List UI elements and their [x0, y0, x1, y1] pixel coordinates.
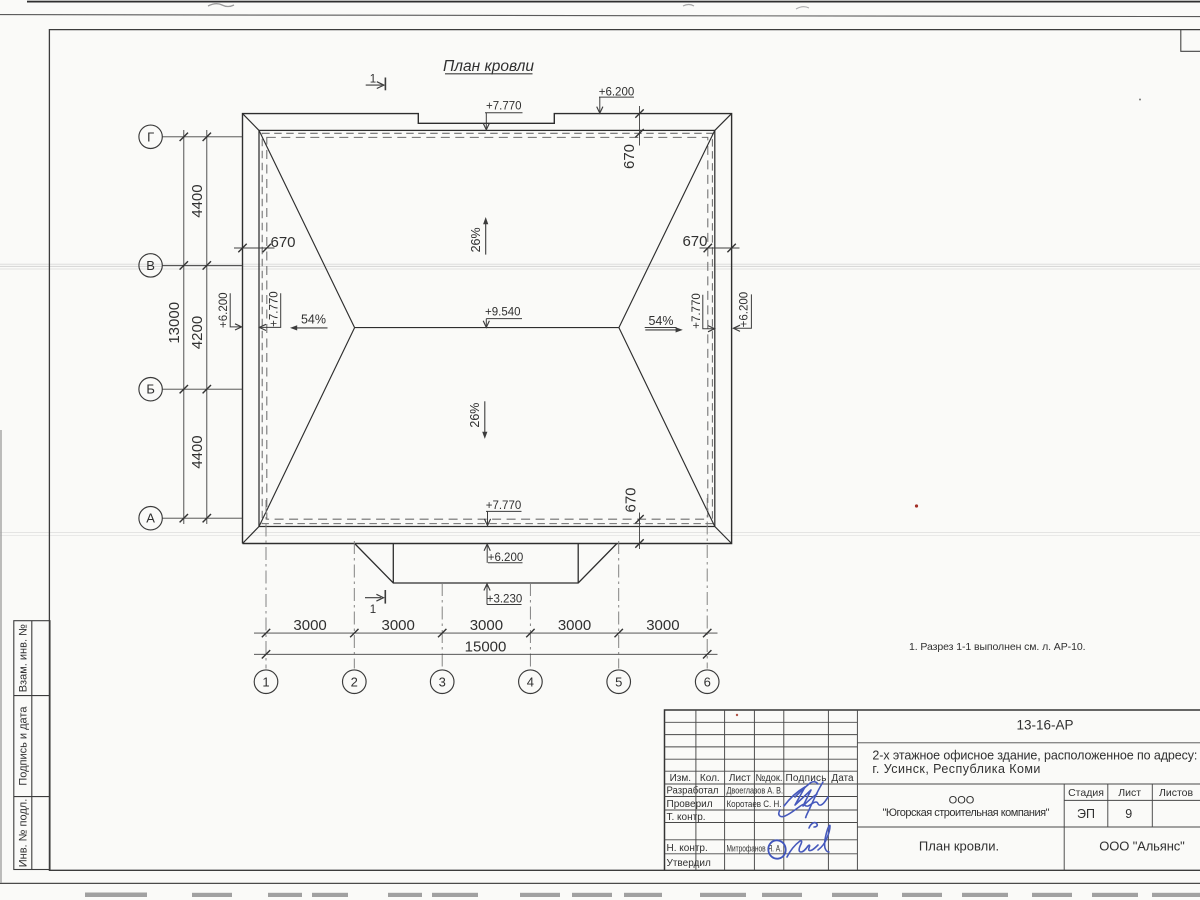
svg-text:Двоеглазов А. В.: Двоеглазов А. В. — [727, 786, 784, 797]
svg-text:+6.200: +6.200 — [488, 552, 524, 564]
svg-text:Подпись и дата: Подпись и дата — [17, 706, 29, 786]
svg-text:54%: 54% — [301, 312, 326, 326]
svg-text:ООО "Альянс": ООО "Альянс" — [1099, 838, 1185, 853]
svg-text:670: 670 — [622, 487, 639, 512]
svg-text:Лист: Лист — [1118, 787, 1141, 799]
svg-text:Б: Б — [146, 382, 155, 397]
svg-text:ООО: ООО — [949, 794, 975, 806]
svg-text:1: 1 — [370, 604, 376, 616]
svg-text:Взам. инв. №: Взам. инв. № — [17, 624, 29, 692]
svg-text:+9.540: +9.540 — [485, 307, 521, 319]
svg-text:+6.200: +6.200 — [218, 292, 230, 328]
svg-text:13-16-АР: 13-16-АР — [1016, 718, 1073, 733]
svg-text:Инв. № подл.: Инв. № подл. — [17, 799, 29, 868]
svg-text:3000: 3000 — [470, 617, 503, 634]
svg-text:г. Усинск, Республика Коми: г. Усинск, Республика Коми — [872, 762, 1040, 776]
svg-text:Лист: Лист — [729, 773, 751, 784]
svg-text:Утвердил: Утвердил — [667, 858, 711, 869]
svg-text:"Югорская строительная компани: "Югорская строительная компания" — [883, 807, 1050, 819]
svg-text:+7.770: +7.770 — [486, 500, 522, 512]
svg-text:+7.770: +7.770 — [268, 291, 280, 327]
svg-text:670: 670 — [271, 234, 296, 251]
svg-text:№док.: №док. — [756, 773, 783, 784]
svg-text:Изм.: Изм. — [670, 773, 691, 784]
svg-text:5: 5 — [615, 674, 622, 689]
svg-text:+7.770: +7.770 — [486, 101, 522, 113]
svg-text:4400: 4400 — [189, 435, 206, 468]
svg-text:4: 4 — [527, 674, 534, 689]
svg-text:+3.230: +3.230 — [487, 594, 523, 606]
svg-text:4200: 4200 — [189, 316, 206, 349]
svg-text:Т. контр.: Т. контр. — [667, 812, 706, 823]
svg-text:670: 670 — [682, 233, 707, 250]
svg-text:План кровли: План кровли — [443, 58, 534, 75]
svg-text:Митрофанов Я. А.: Митрофанов Я. А. — [727, 843, 783, 854]
svg-text:Н. контр.: Н. контр. — [667, 843, 708, 854]
svg-text:3000: 3000 — [646, 617, 679, 634]
svg-text:ЭП: ЭП — [1077, 807, 1095, 821]
svg-text:План кровли.: План кровли. — [919, 838, 999, 853]
svg-text:26%: 26% — [468, 403, 482, 428]
svg-text:13000: 13000 — [166, 302, 183, 344]
svg-text:Разработал: Разработал — [667, 784, 719, 796]
svg-text:3000: 3000 — [382, 617, 415, 634]
svg-text:В: В — [146, 258, 155, 273]
svg-text:3000: 3000 — [558, 617, 591, 634]
svg-text:670: 670 — [621, 144, 638, 169]
svg-text:15000: 15000 — [465, 639, 507, 656]
svg-text:9: 9 — [1125, 807, 1132, 821]
svg-text:Подпись: Подпись — [786, 773, 827, 784]
svg-text:+7.770: +7.770 — [691, 293, 703, 329]
svg-text:1: 1 — [262, 674, 269, 689]
svg-text:Коротаев С. Н.: Коротаев С. Н. — [727, 799, 782, 810]
svg-text:1: 1 — [370, 73, 376, 85]
svg-text:3000: 3000 — [293, 617, 326, 634]
svg-text:+6.200: +6.200 — [738, 292, 750, 328]
svg-text:4400: 4400 — [189, 184, 206, 217]
svg-text:Кол.: Кол. — [700, 773, 720, 784]
svg-text:Г: Г — [147, 129, 154, 144]
svg-text:Стадия: Стадия — [1068, 787, 1104, 799]
svg-text:3: 3 — [439, 674, 446, 689]
svg-text:2: 2 — [351, 674, 358, 689]
svg-text:Листов: Листов — [1159, 787, 1194, 799]
svg-text:Проверил: Проверил — [667, 799, 713, 810]
svg-text:1. Разрез 1-1 выполнен см. л.: 1. Разрез 1-1 выполнен см. л. АР-10. — [909, 641, 1086, 653]
svg-text:6: 6 — [704, 674, 711, 689]
svg-text:А: А — [146, 511, 155, 526]
svg-text:54%: 54% — [648, 314, 673, 328]
svg-text:26%: 26% — [469, 227, 483, 252]
svg-text:2-х этажное офисное здание, ра: 2-х этажное офисное здание, расположенно… — [872, 749, 1197, 763]
svg-text:Дата: Дата — [831, 773, 854, 784]
